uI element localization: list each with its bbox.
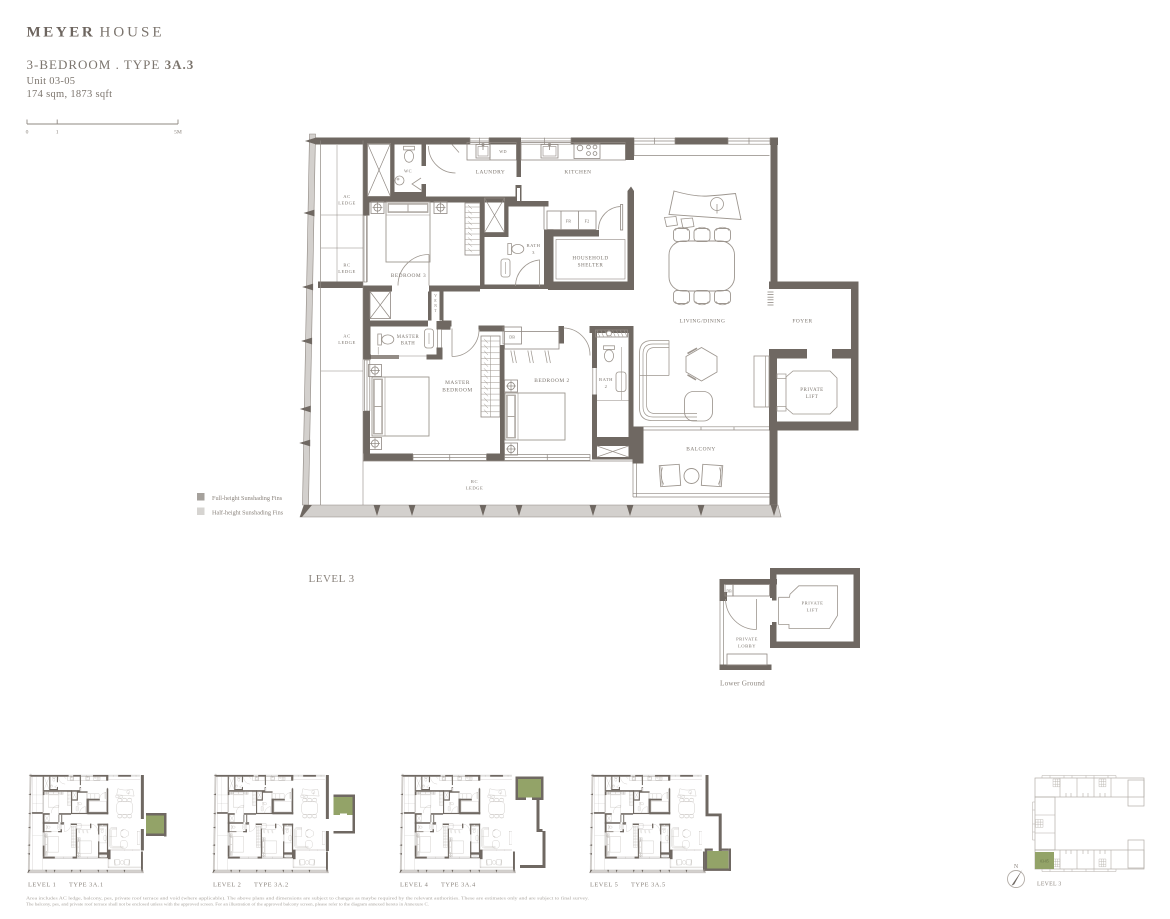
svg-text:BEDROOM 2: BEDROOM 2 <box>534 378 570 384</box>
svg-text:LEDGE: LEDGE <box>338 269 356 274</box>
svg-text:WD: WD <box>499 149 506 154</box>
svg-text:LEDGE: LEDGE <box>338 340 356 345</box>
svg-text:LEVEL 3: LEVEL 3 <box>1037 882 1062 888</box>
svg-text:TYPE 3A.2: TYPE 3A.2 <box>254 882 289 889</box>
svg-text:LEVEL 1: LEVEL 1 <box>28 882 56 889</box>
svg-text:AC: AC <box>343 334 350 339</box>
svg-text:3: 3 <box>532 250 535 255</box>
svg-text:PRIVATE: PRIVATE <box>736 637 758 642</box>
svg-text:TYPE 3A.1: TYPE 3A.1 <box>69 882 104 889</box>
svg-text:SHELTER: SHELTER <box>578 263 604 269</box>
svg-text:N: N <box>1014 864 1019 870</box>
svg-text:03-05: 03-05 <box>1040 860 1049 864</box>
svg-text:V: V <box>434 294 437 298</box>
svg-text:LIVING/DINING: LIVING/DINING <box>680 319 726 325</box>
svg-text:FOYER: FOYER <box>792 319 812 325</box>
svg-text:LEVEL 4: LEVEL 4 <box>400 882 429 889</box>
svg-text:N: N <box>434 304 437 308</box>
svg-text:Half-height Sunshading Fins: Half-height Sunshading Fins <box>212 510 284 517</box>
svg-text:FR: FR <box>566 219 572 224</box>
svg-text:TYPE 3A.5: TYPE 3A.5 <box>631 882 666 889</box>
svg-text:RC: RC <box>343 263 350 268</box>
svg-text:LEVEL 5: LEVEL 5 <box>590 882 618 889</box>
svg-text:AC: AC <box>343 194 350 199</box>
svg-text:F2: F2 <box>585 219 590 224</box>
svg-text:T: T <box>434 309 437 313</box>
svg-text:PRIVATE: PRIVATE <box>800 388 823 393</box>
svg-text:2: 2 <box>605 384 608 389</box>
svg-text:Full-height Sunshading Fins: Full-height Sunshading Fins <box>212 495 283 502</box>
svg-text:LIFT: LIFT <box>807 608 819 613</box>
svg-text:BEDROOM 3: BEDROOM 3 <box>391 273 427 279</box>
svg-text:BATH: BATH <box>401 342 416 347</box>
svg-text:174 sqm, 1873 sqft: 174 sqm, 1873 sqft <box>27 89 113 100</box>
svg-text:HOUSE: HOUSE <box>100 25 165 41</box>
svg-text:DB: DB <box>726 590 732 594</box>
svg-text:BATH: BATH <box>599 377 613 382</box>
svg-text:HOUSEHOLD: HOUSEHOLD <box>572 256 608 262</box>
svg-text:1: 1 <box>56 130 59 136</box>
svg-text:LEVEL 2: LEVEL 2 <box>213 882 241 889</box>
svg-text:LIFT: LIFT <box>806 395 819 400</box>
svg-text:5M: 5M <box>174 130 182 136</box>
svg-text:LEVEL 3: LEVEL 3 <box>309 573 355 585</box>
svg-text:LEDGE: LEDGE <box>338 201 356 206</box>
svg-text:TYPE 3A.4: TYPE 3A.4 <box>441 882 476 889</box>
svg-text:MASTER: MASTER <box>445 380 470 386</box>
svg-text:The balcony, pes, and private: The balcony, pes, and private roof terra… <box>26 902 429 908</box>
svg-text:LEDGE: LEDGE <box>466 486 484 491</box>
svg-text:MEYER: MEYER <box>27 25 96 41</box>
svg-text:KITCHEN: KITCHEN <box>564 170 591 176</box>
svg-text:BATH: BATH <box>527 243 541 248</box>
svg-text:Lower Ground: Lower Ground <box>720 680 765 688</box>
svg-text:E: E <box>434 299 437 303</box>
svg-text:WC: WC <box>404 169 412 174</box>
svg-text:0: 0 <box>26 130 29 136</box>
svg-text:BEDROOM: BEDROOM <box>442 388 472 394</box>
svg-text:BALCONY: BALCONY <box>686 447 716 453</box>
svg-text:DB: DB <box>509 335 515 340</box>
svg-text:PRIVATE: PRIVATE <box>802 601 824 606</box>
svg-text:LOBBY: LOBBY <box>738 644 756 649</box>
svg-text:3-BEDROOM . TYPE 3A.3: 3-BEDROOM . TYPE 3A.3 <box>27 57 195 72</box>
svg-text:MASTER: MASTER <box>397 335 420 340</box>
svg-text:Unit 03-05: Unit 03-05 <box>27 76 76 87</box>
svg-text:RC: RC <box>471 479 478 484</box>
svg-text:LAUNDRY: LAUNDRY <box>476 170 506 176</box>
